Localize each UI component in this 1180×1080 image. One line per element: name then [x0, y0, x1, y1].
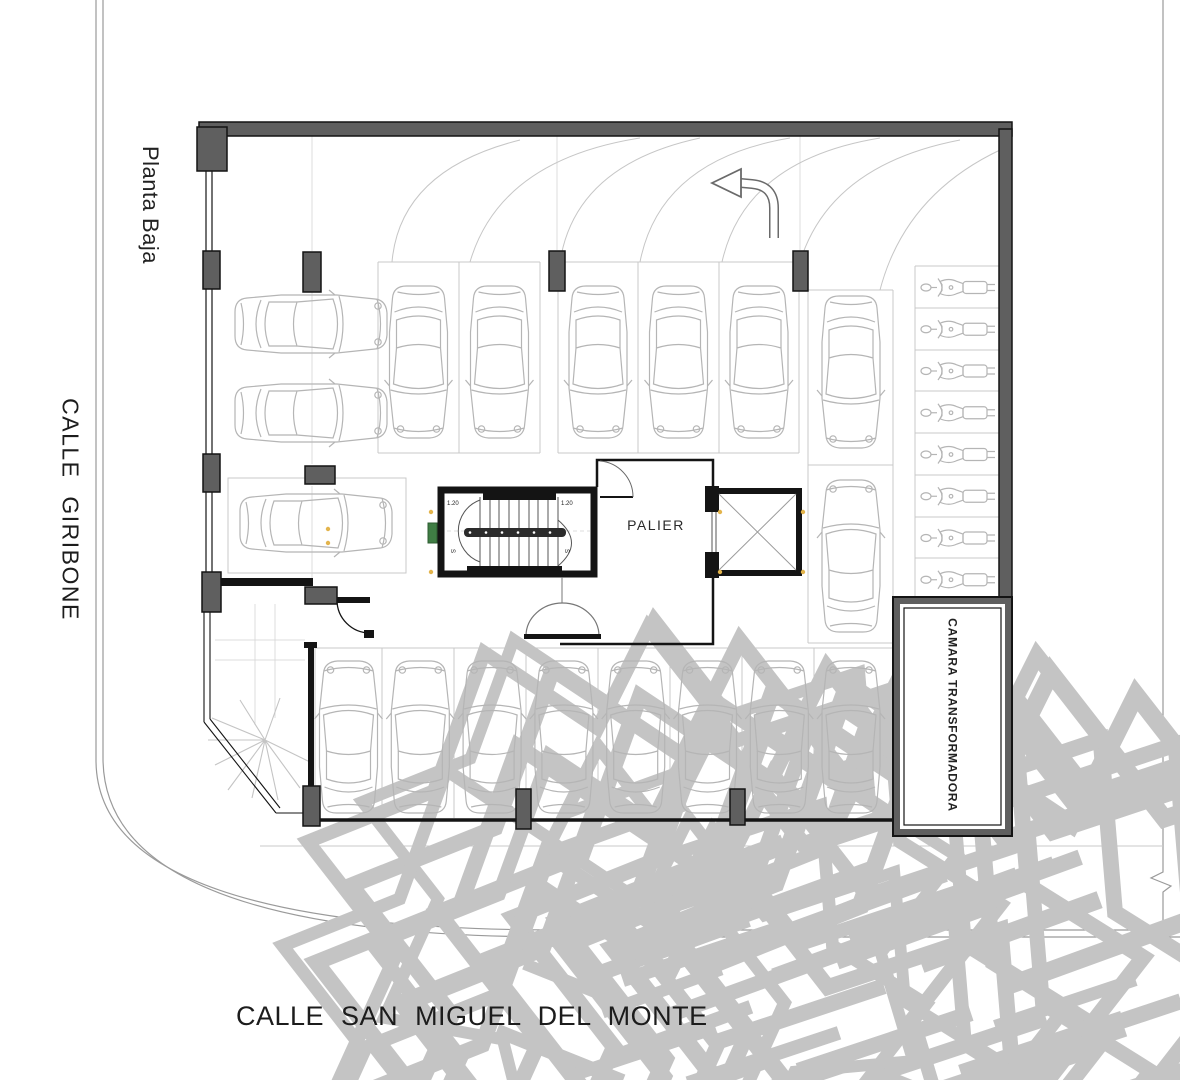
- palm-plant: [208, 698, 310, 800]
- motorcycle: [921, 529, 995, 547]
- car: [240, 489, 392, 557]
- elevator: [705, 486, 799, 578]
- car: [817, 296, 885, 448]
- motorcycle: [921, 279, 995, 297]
- car: [235, 290, 387, 358]
- motorcycle: [921, 404, 995, 422]
- floor-plan-svg: 1.20 1.20 S S: [0, 0, 1180, 1080]
- car: [235, 379, 387, 447]
- lobby-label: PALIER: [596, 517, 716, 533]
- stair-direction-mark: S: [449, 549, 455, 553]
- parking-zone-east-moto-column: [921, 279, 995, 589]
- north-wall: [199, 122, 1012, 136]
- motorcycle: [921, 362, 995, 380]
- stair-core: 1.20 1.20 S S: [428, 490, 594, 574]
- entry-door-swing: [526, 603, 599, 636]
- parking-zone-top-row-east: [564, 286, 793, 438]
- ramp-turning-arcs: [392, 138, 1000, 290]
- car: [725, 286, 793, 438]
- street-name-bottom: CALLE SAN MIGUEL DEL MONTE: [236, 1001, 708, 1032]
- floor-plan-canvas: 1.20 1.20 S S Plant: [0, 0, 1180, 1080]
- east-wall: [999, 129, 1012, 598]
- motorcycle: [921, 320, 995, 338]
- stair-direction-mark: S: [563, 549, 569, 553]
- parking-zone-west-wall-pair: [235, 290, 387, 447]
- motorcycle: [921, 446, 995, 464]
- stair-width-dim: 1.20: [561, 501, 573, 507]
- car: [817, 480, 885, 632]
- lobby-door-swing: [600, 461, 633, 497]
- motorcycle: [921, 571, 995, 589]
- parking-zone-west-garage: [240, 489, 392, 557]
- car: [564, 286, 632, 438]
- transformer-room-label: CAMARA TRANSFORMADORA: [946, 608, 960, 823]
- west-wall: [206, 136, 212, 580]
- stair-green-marker: [428, 523, 437, 543]
- parking-zone-core-east-north: [817, 296, 885, 448]
- street-name-left: CALLE GIRIBONE: [57, 388, 84, 632]
- stair-width-dim: 1.20: [447, 501, 459, 507]
- car: [466, 286, 534, 438]
- car: [385, 286, 453, 438]
- motorcycle: [921, 487, 995, 505]
- parking-zone-core-east-south: [817, 480, 885, 632]
- floor-title: Planta Baja: [137, 131, 163, 279]
- car: [645, 286, 713, 438]
- direction-arrow: [712, 169, 774, 238]
- car: [315, 661, 383, 813]
